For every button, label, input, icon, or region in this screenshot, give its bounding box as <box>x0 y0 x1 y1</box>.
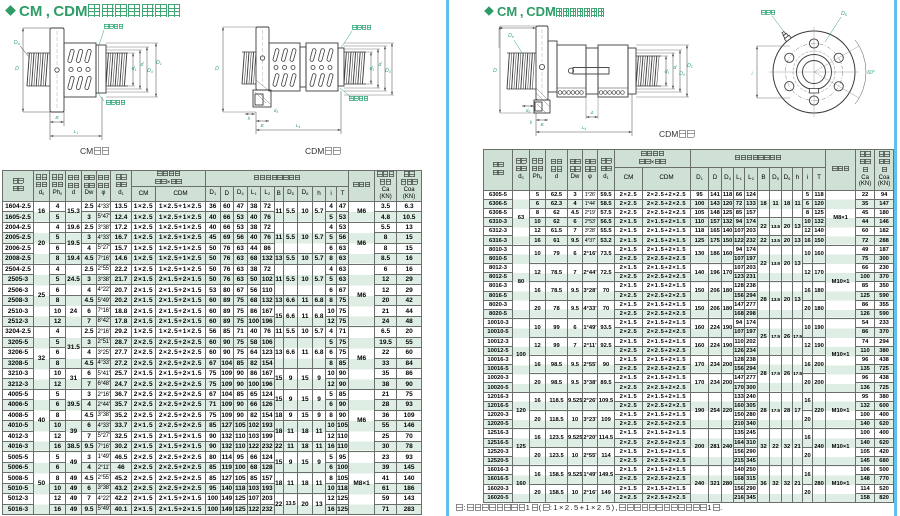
svg-text:d1: d1 <box>665 69 670 75</box>
svg-text:D1: D1 <box>687 63 693 69</box>
svg-text:B: B <box>55 115 59 121</box>
svg-text:d5: d5 <box>274 108 279 114</box>
svg-text:d1: d1 <box>370 66 375 72</box>
svg-text:L4: L4 <box>296 123 301 129</box>
svg-text:i: i <box>751 71 753 77</box>
svg-text:Δ: Δ <box>589 110 593 115</box>
svg-text:D: D <box>215 66 219 72</box>
svg-text:60°: 60° <box>867 70 875 76</box>
svg-text:De: De <box>508 33 514 39</box>
svg-text:D4: D4 <box>385 68 391 74</box>
svg-text:B: B <box>260 123 263 128</box>
svg-text:L1: L1 <box>74 129 79 135</box>
svg-text:D4: D4 <box>147 68 153 74</box>
svg-text:d1: d1 <box>132 66 137 72</box>
svg-text:h: h <box>530 120 533 125</box>
svg-text:B: B <box>540 122 543 127</box>
svg-text:D: D <box>493 68 497 74</box>
svg-text:D4: D4 <box>679 71 685 77</box>
svg-text:D6: D6 <box>841 11 847 17</box>
svg-text:d: d <box>379 62 383 68</box>
svg-text:d: d <box>141 62 145 68</box>
svg-text:h: h <box>248 116 251 121</box>
svg-text:D: D <box>15 66 19 72</box>
svg-text:Dw: Dw <box>14 40 21 46</box>
svg-text:D1: D1 <box>156 60 162 66</box>
svg-text:L4: L4 <box>582 125 587 131</box>
svg-text:d: d <box>674 65 678 71</box>
